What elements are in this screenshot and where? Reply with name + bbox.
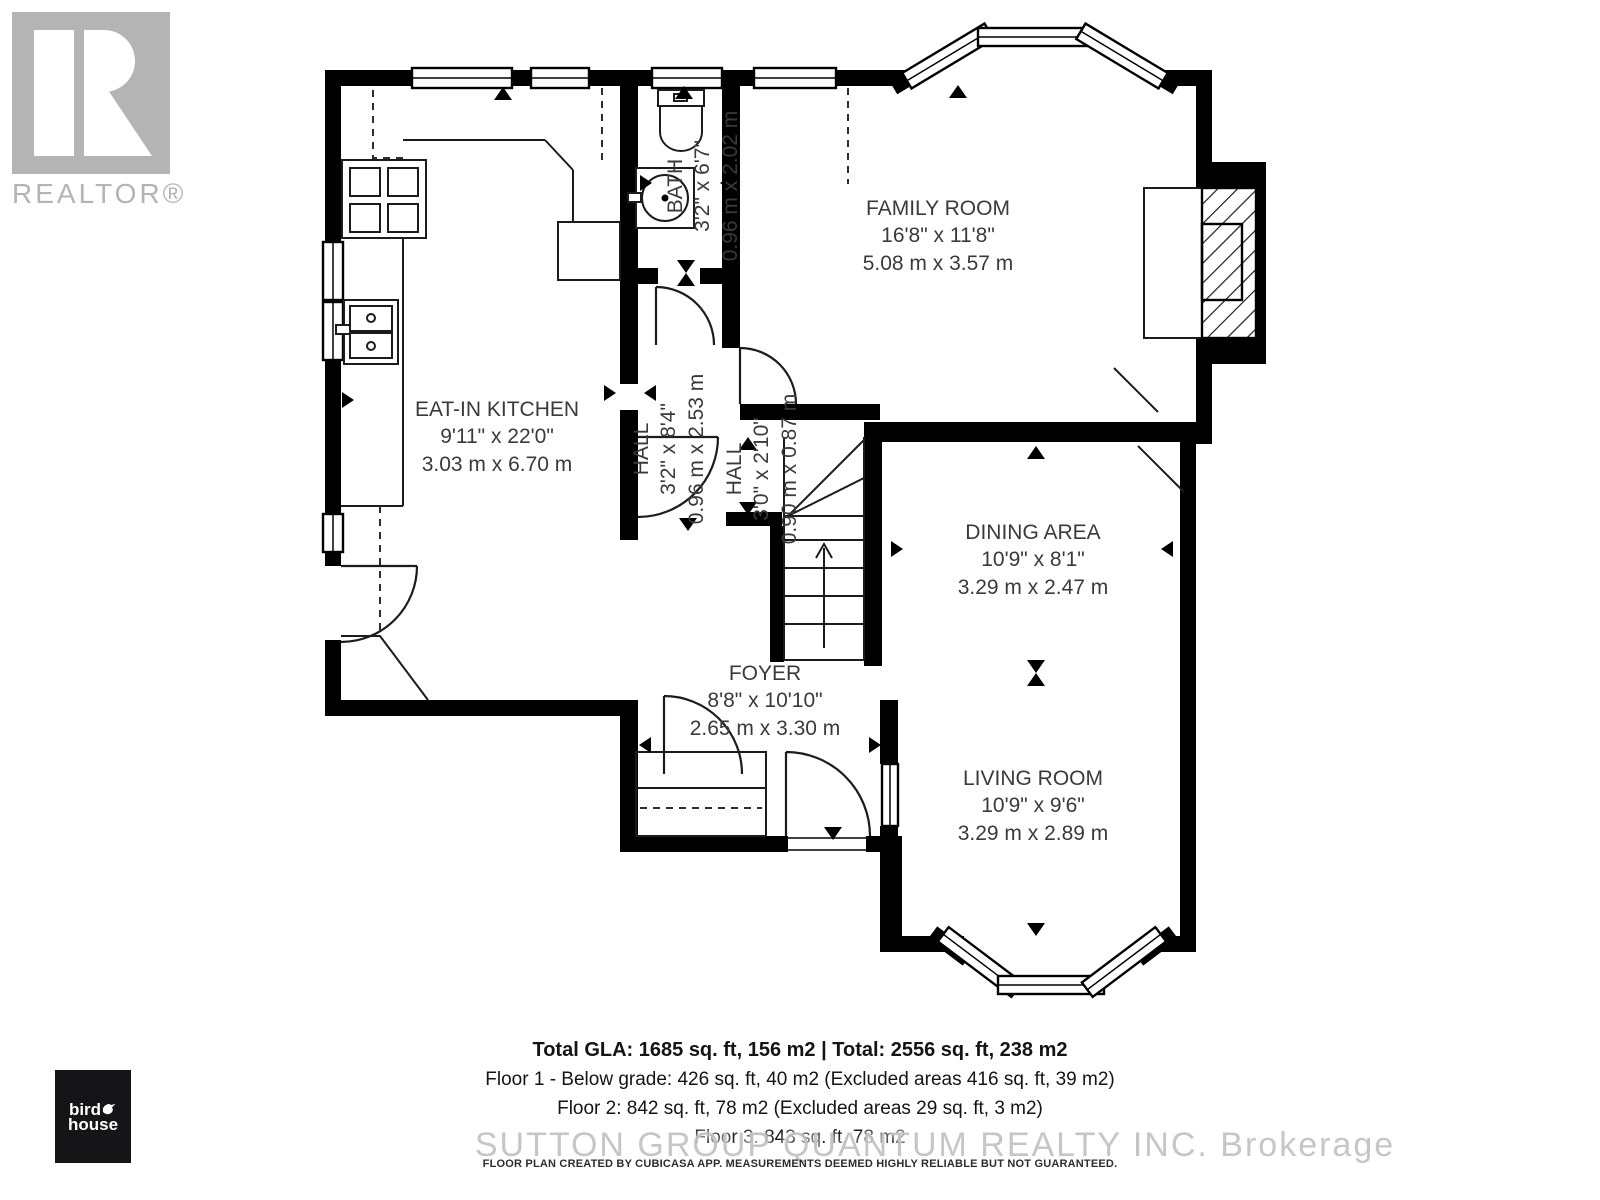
room-name: DINING AREA bbox=[958, 519, 1109, 546]
kitchen-sink bbox=[336, 300, 398, 364]
realtor-logo-label: REALTOR® bbox=[12, 178, 182, 210]
kitchen-table bbox=[558, 222, 620, 280]
realtor-r-icon bbox=[12, 12, 170, 174]
room-size-imperial: 10'9" x 8'1" bbox=[958, 546, 1109, 573]
room-name: FOYER bbox=[690, 660, 841, 687]
room-size-imperial: 10'9" x 9'6" bbox=[958, 792, 1109, 819]
bird-icon bbox=[102, 1103, 117, 1116]
floor-plan-drawing bbox=[0, 0, 1600, 1200]
birdhouse-word2: house bbox=[68, 1117, 118, 1132]
summary-floor2-line: Floor 2: 842 sq. ft, 78 m2 (Excluded are… bbox=[485, 1094, 1114, 1123]
room-label-dining: DINING AREA 10'9" x 8'1" 3.29 m x 2.47 m bbox=[958, 519, 1109, 601]
summary-floor1-line: Floor 1 - Below grade: 426 sq. ft, 40 m2… bbox=[485, 1065, 1114, 1094]
room-size-metric: 5.08 m x 3.57 m bbox=[863, 250, 1014, 277]
room-size-imperial: 3'2" x 6'7" bbox=[689, 111, 716, 262]
room-label-kitchen: EAT-IN KITCHEN 9'11" x 22'0" 3.03 m x 6.… bbox=[415, 396, 579, 478]
room-name: LIVING ROOM bbox=[958, 765, 1109, 792]
doors bbox=[341, 287, 870, 836]
room-size-imperial: 9'11" x 22'0" bbox=[415, 423, 579, 450]
room-name: BATH bbox=[662, 111, 689, 262]
room-name: EAT-IN KITCHEN bbox=[415, 396, 579, 423]
room-name: HALL bbox=[721, 394, 748, 545]
room-size-metric: 3.03 m x 6.70 m bbox=[415, 451, 579, 478]
room-size-imperial: 16'8" x 11'8" bbox=[863, 222, 1014, 249]
room-size-metric: 2.65 m x 3.30 m bbox=[690, 715, 841, 742]
room-label-bath: BATH 3'2" x 6'7" 0.96 m x 2.02 m bbox=[662, 111, 744, 262]
floor-plan-page: FAMILY ROOM 16'8" x 11'8" 5.08 m x 3.57 … bbox=[0, 0, 1600, 1200]
room-size-metric: 3.29 m x 2.47 m bbox=[958, 574, 1109, 601]
stove bbox=[342, 160, 426, 238]
room-size-imperial: 3'2" x 8'4" bbox=[655, 374, 682, 525]
birdhouse-word2-row: house bbox=[68, 1117, 118, 1132]
summary-total-line: Total GLA: 1685 sq. ft, 156 m2 | Total: … bbox=[485, 1036, 1114, 1065]
room-size-metric: 0.96 m x 2.02 m bbox=[717, 111, 744, 262]
room-name: FAMILY ROOM bbox=[863, 195, 1014, 222]
room-name: HALL bbox=[628, 374, 655, 525]
room-label-hall: HALL 3'2" x 8'4" 0.96 m x 2.53 m bbox=[628, 374, 710, 525]
room-size-metric: 3.29 m x 2.89 m bbox=[958, 820, 1109, 847]
foyer-closet bbox=[636, 752, 766, 836]
room-size-metric: 0.90 m x 0.87 m bbox=[776, 394, 803, 545]
room-label-living: LIVING ROOM 10'9" x 9'6" 3.29 m x 2.89 m bbox=[958, 765, 1109, 847]
room-label-hall-small: HALL 3'0" x 2'10" 0.90 m x 0.87 m bbox=[721, 394, 803, 545]
realtor-logo: REALTOR® bbox=[12, 12, 182, 210]
room-label-foyer: FOYER 8'8" x 10'10" 2.65 m x 3.30 m bbox=[690, 660, 841, 742]
room-size-imperial: 3'0" x 2'10" bbox=[748, 394, 775, 545]
disclaimer: FLOOR PLAN CREATED BY CUBICASA APP. MEAS… bbox=[483, 1158, 1118, 1170]
room-label-family-room: FAMILY ROOM 16'8" x 11'8" 5.08 m x 3.57 … bbox=[863, 195, 1014, 277]
room-size-metric: 0.96 m x 2.53 m bbox=[683, 374, 710, 525]
fireplace bbox=[1144, 162, 1266, 364]
room-size-imperial: 8'8" x 10'10" bbox=[690, 687, 841, 714]
birdhouse-logo: bird house bbox=[55, 1070, 131, 1163]
